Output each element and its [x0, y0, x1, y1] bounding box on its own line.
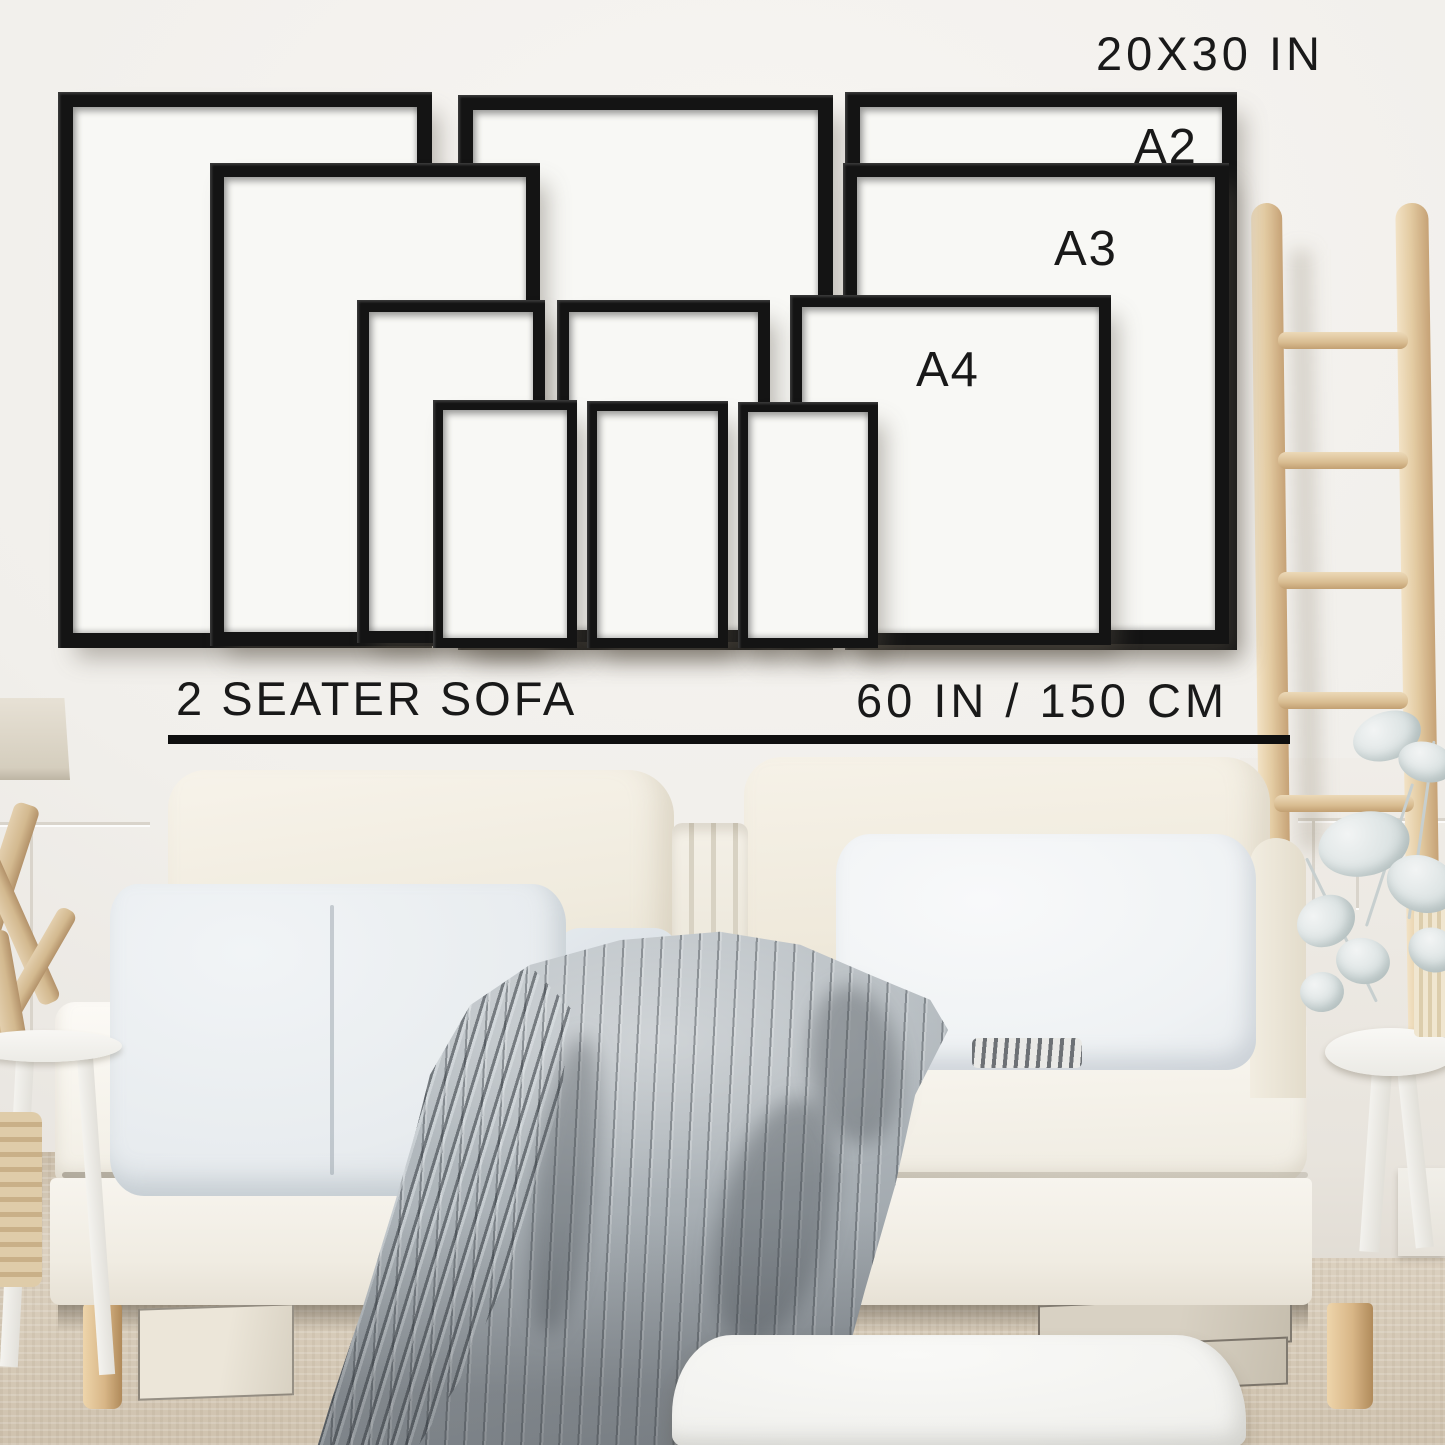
frames-layer	[0, 0, 1445, 760]
frame-mat	[748, 412, 868, 638]
sofa-label: 2 SEATER SOFA	[176, 675, 577, 722]
size-label-20x30: 20X30 IN	[1096, 30, 1324, 77]
frame-a4-left	[433, 400, 577, 648]
sofa-right-edge	[1250, 838, 1306, 1098]
size-guide-image: 20X30 IN A2 A3 A4 2 SEATER SOFA 60 IN / …	[0, 0, 1445, 1445]
storage-box-under-sofa	[138, 1303, 294, 1400]
size-label-a2: A2	[1134, 123, 1198, 172]
size-label-a4: A4	[916, 346, 980, 395]
woven-basket	[0, 1112, 42, 1287]
frame-mat	[443, 410, 567, 638]
ladder-rung	[1274, 795, 1414, 812]
underline-rule	[168, 735, 1290, 744]
frame-mat	[597, 411, 718, 638]
sofa-leg	[1327, 1303, 1373, 1409]
pillow-striped-edge	[972, 1038, 1082, 1068]
frame-a4-right	[738, 402, 878, 648]
floor-pillow	[672, 1335, 1246, 1445]
frame-a4-middle	[587, 401, 728, 648]
sofa-width-label: 60 IN / 150 CM	[856, 677, 1228, 724]
size-label-a3: A3	[1054, 225, 1118, 274]
table-lamp-shade	[0, 698, 70, 780]
